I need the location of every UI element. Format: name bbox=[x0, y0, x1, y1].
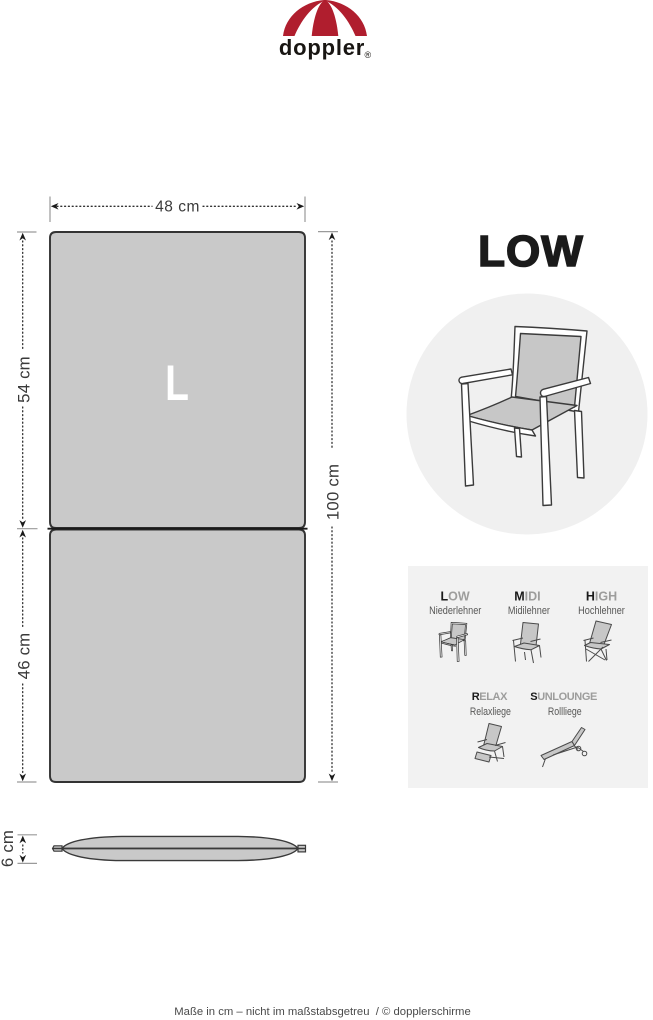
svg-text:HIGH: HIGH bbox=[586, 590, 617, 604]
svg-text:SUNLOUNGE: SUNLOUNGE bbox=[530, 691, 597, 703]
svg-text:MIDI: MIDI bbox=[514, 590, 540, 604]
svg-text:RELAX: RELAX bbox=[472, 691, 508, 703]
svg-text:54 cm: 54 cm bbox=[14, 356, 33, 403]
svg-text:LOW: LOW bbox=[441, 590, 470, 604]
svg-text:46 cm: 46 cm bbox=[14, 633, 33, 680]
svg-text:6 cm: 6 cm bbox=[0, 830, 17, 867]
svg-text:Midilehner: Midilehner bbox=[508, 605, 551, 617]
svg-text:L: L bbox=[165, 354, 189, 411]
svg-text:doppler: doppler bbox=[279, 35, 365, 60]
svg-text:Relaxliege: Relaxliege bbox=[470, 706, 511, 718]
svg-text:Hochlehner: Hochlehner bbox=[578, 605, 625, 617]
svg-text:Maße in cm – nicht im maßstabs: Maße in cm – nicht im maßstabsgetreu / ©… bbox=[174, 1006, 471, 1018]
svg-text:Rollliege: Rollliege bbox=[548, 706, 582, 718]
svg-text:®: ® bbox=[364, 50, 371, 60]
svg-text:48 cm: 48 cm bbox=[155, 199, 200, 216]
svg-text:LOW: LOW bbox=[478, 227, 584, 276]
svg-text:100 cm: 100 cm bbox=[324, 464, 343, 520]
svg-text:Niederlehner: Niederlehner bbox=[429, 605, 482, 617]
